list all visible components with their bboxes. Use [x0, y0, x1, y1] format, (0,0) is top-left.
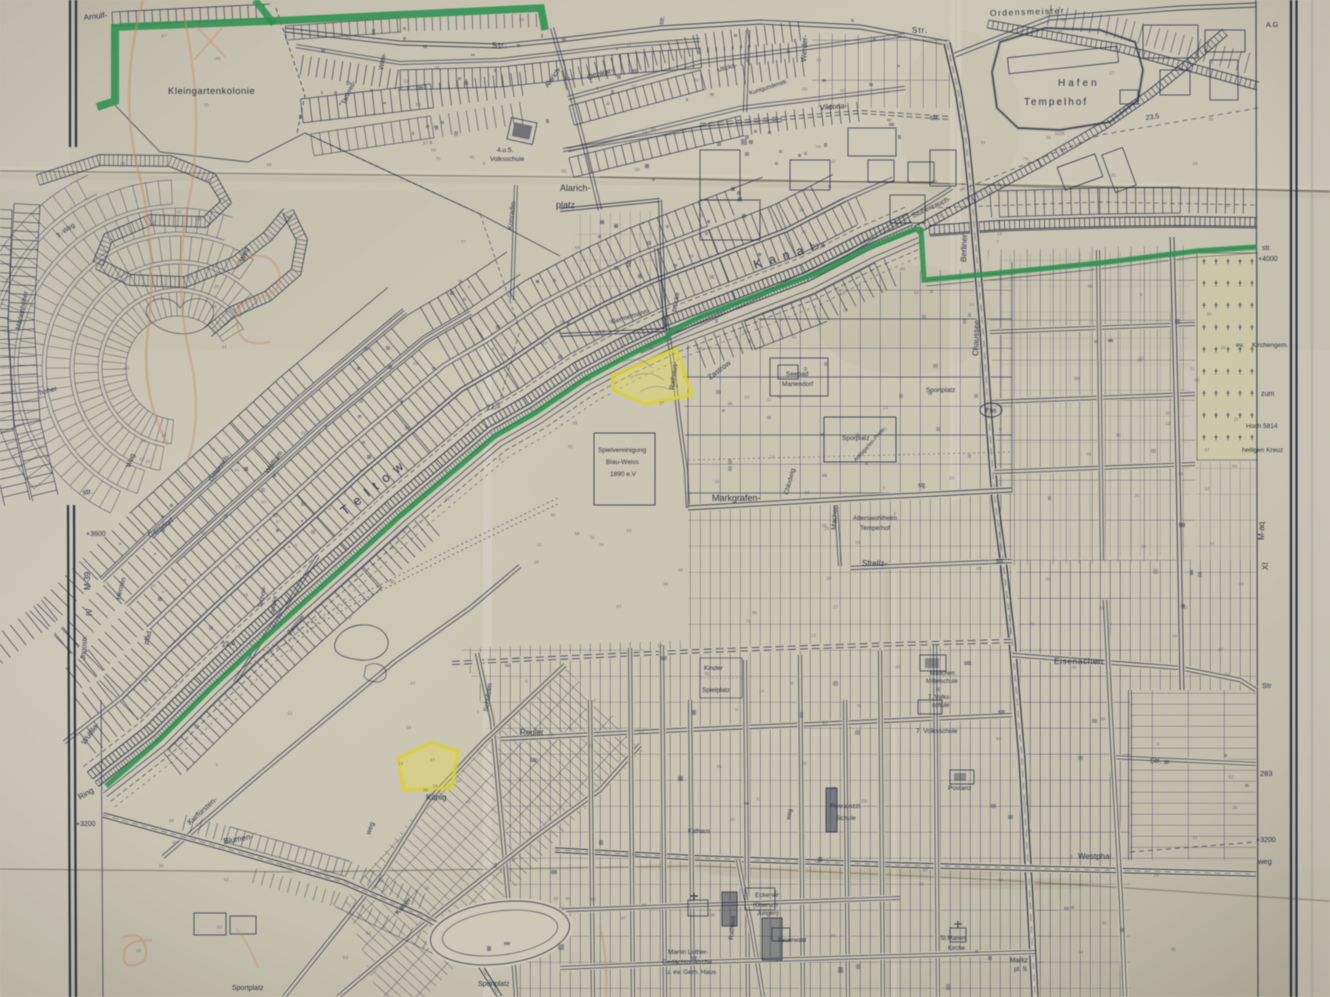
svg-text:11: 11: [626, 43, 631, 48]
svg-text:Reuler: Reuler: [520, 728, 544, 737]
svg-text:62: 62: [151, 583, 157, 588]
svg-text:64: 64: [996, 736, 1002, 741]
svg-text:Alterswohlheim: Alterswohlheim: [853, 515, 897, 522]
svg-text:79: 79: [1023, 156, 1029, 161]
svg-text:66: 66: [212, 304, 218, 309]
svg-text:47: 47: [410, 681, 416, 686]
svg-text:28: 28: [214, 284, 220, 289]
svg-text:Sportplatz: Sportplatz: [478, 981, 510, 988]
svg-text:10: 10: [826, 576, 832, 581]
svg-text:58: 58: [822, 523, 828, 528]
svg-text:60: 60: [1195, 378, 1201, 383]
svg-text:21: 21: [287, 711, 293, 716]
svg-text:52: 52: [404, 78, 410, 83]
svg-text:40: 40: [550, 513, 556, 518]
svg-text:18: 18: [1061, 148, 1067, 153]
svg-text:Tempelhof: Tempelhof: [1024, 97, 1088, 108]
svg-text:Str.: Str.: [1150, 756, 1161, 765]
svg-text:70: 70: [204, 103, 210, 108]
svg-text:75: 75: [478, 370, 484, 375]
svg-text:31: 31: [1046, 135, 1052, 140]
svg-text:62: 62: [280, 864, 286, 869]
svg-text:Spielplatz: Spielplatz: [702, 687, 730, 694]
svg-text:18: 18: [313, 471, 319, 476]
svg-text:30: 30: [1225, 203, 1231, 208]
svg-text:13: 13: [657, 643, 663, 648]
svg-text:66: 66: [501, 352, 507, 357]
svg-text:46: 46: [234, 467, 240, 472]
svg-text:14: 14: [398, 761, 404, 766]
svg-text:14: 14: [769, 454, 775, 459]
svg-text:23: 23: [195, 216, 201, 221]
svg-text:10: 10: [390, 545, 396, 550]
svg-text:73: 73: [210, 447, 216, 452]
svg-text:43: 43: [976, 566, 982, 571]
svg-text:12: 12: [1165, 421, 1171, 426]
svg-text:74: 74: [631, 852, 637, 857]
svg-text:37: 37: [1234, 417, 1240, 422]
svg-text:25: 25: [445, 496, 451, 501]
svg-text:26: 26: [425, 886, 431, 891]
svg-text:10: 10: [730, 817, 736, 822]
svg-text:65: 65: [651, 127, 657, 132]
svg-text:34: 34: [1078, 949, 1084, 954]
svg-text:34: 34: [1209, 541, 1215, 546]
svg-text:22: 22: [1099, 606, 1105, 611]
svg-text:16: 16: [559, 399, 565, 404]
svg-text:36: 36: [663, 582, 669, 587]
svg-text:53: 53: [855, 540, 861, 545]
svg-text:67: 67: [161, 34, 167, 39]
svg-text:heiligen Kreuz: heiligen Kreuz: [1242, 447, 1283, 454]
svg-text:XI: XI: [1261, 562, 1270, 570]
svg-text:Blau-Weiss: Blau-Weiss: [606, 459, 640, 466]
svg-text:51: 51: [519, 17, 525, 22]
svg-text:36: 36: [801, 230, 807, 235]
svg-text:13: 13: [831, 786, 837, 791]
svg-text:ev.: ev.: [1236, 342, 1244, 349]
svg-text:Feuerwald: Feuerwald: [778, 938, 806, 944]
svg-text:73: 73: [642, 130, 648, 135]
svg-text:14: 14: [759, 688, 765, 693]
svg-text:29: 29: [549, 732, 555, 737]
svg-text:73: 73: [1029, 622, 1035, 627]
svg-text:Mittelschule: Mittelschule: [926, 679, 958, 685]
svg-text:M-39: M-39: [83, 571, 92, 590]
svg-text:35: 35: [194, 723, 200, 728]
svg-text:+4000: +4000: [1258, 256, 1278, 263]
svg-text:42: 42: [176, 210, 182, 215]
svg-text:69: 69: [743, 329, 749, 334]
svg-text:Postanz: Postanz: [948, 785, 972, 792]
svg-text:37: 37: [831, 159, 837, 164]
svg-text:67: 67: [823, 720, 829, 725]
svg-text:66: 66: [566, 896, 572, 901]
svg-text:23: 23: [949, 475, 955, 480]
svg-text:67: 67: [151, 220, 157, 225]
svg-text:1890 e.V: 1890 e.V: [610, 471, 637, 478]
svg-text:Machon: Machon: [831, 505, 839, 530]
svg-text:35: 35: [1057, 30, 1063, 35]
svg-text:32: 32: [694, 78, 700, 83]
svg-text:68: 68: [575, 531, 581, 536]
svg-text:St.Marien: St.Marien: [940, 936, 966, 942]
svg-text:+3600: +3600: [86, 531, 106, 538]
svg-text:42: 42: [568, 444, 574, 449]
svg-text:32: 32: [1046, 577, 1052, 582]
svg-text:67: 67: [840, 88, 846, 93]
svg-text:str: str: [998, 709, 1006, 716]
svg-text:36: 36: [1208, 117, 1214, 122]
svg-text:39: 39: [1232, 805, 1238, 810]
svg-text:52: 52: [224, 877, 230, 882]
svg-text:67: 67: [632, 83, 638, 88]
svg-text:Kleingartenkolonie: Kleingartenkolonie: [168, 86, 255, 97]
svg-text:70: 70: [1126, 104, 1132, 109]
svg-text:27: 27: [1109, 71, 1115, 76]
svg-text:30: 30: [804, 490, 810, 495]
svg-text:Jungen): Jungen): [757, 911, 779, 917]
svg-text:(Obersch: (Obersch: [753, 903, 778, 909]
svg-text:7. Volksschule: 7. Volksschule: [916, 728, 958, 735]
svg-text:Chaussee: Chaussee: [971, 319, 981, 356]
svg-text:30: 30: [159, 863, 165, 868]
svg-text:68: 68: [413, 361, 419, 366]
svg-text:Volksschule: Volksschule: [490, 156, 525, 163]
svg-text:40: 40: [919, 882, 925, 887]
svg-text:Alarich-: Alarich-: [560, 183, 591, 193]
svg-text:68: 68: [301, 430, 307, 435]
svg-text:69: 69: [689, 254, 695, 259]
svg-text:39: 39: [1100, 716, 1106, 721]
svg-text:Martin Luther-: Martin Luther-: [668, 949, 708, 956]
svg-text:str.: str.: [1262, 245, 1271, 252]
svg-text:45: 45: [717, 764, 723, 769]
svg-text:19: 19: [534, 560, 540, 565]
svg-text:Schule: Schule: [836, 815, 856, 822]
svg-text:24: 24: [145, 459, 151, 464]
svg-text:platz: platz: [556, 200, 576, 210]
svg-text:IV: IV: [85, 608, 94, 616]
svg-text:67: 67: [591, 897, 597, 902]
svg-text:60: 60: [635, 167, 641, 172]
svg-text:19: 19: [932, 179, 938, 184]
svg-text:20: 20: [1220, 345, 1226, 350]
svg-text:64: 64: [627, 528, 633, 533]
svg-text:12: 12: [811, 633, 817, 638]
svg-text:46: 46: [469, 154, 475, 159]
svg-text:u.: u.: [936, 687, 941, 693]
svg-text:63: 63: [1228, 775, 1234, 780]
svg-text:12: 12: [1204, 486, 1210, 491]
svg-text:Markz: Markz: [1010, 957, 1028, 964]
svg-text:48: 48: [572, 420, 578, 425]
svg-text:22: 22: [1193, 835, 1199, 840]
svg-text:39: 39: [434, 66, 440, 71]
svg-text:30: 30: [773, 889, 779, 894]
svg-text:63: 63: [343, 955, 349, 960]
svg-text:Mariendorf: Mariendorf: [782, 381, 813, 388]
svg-text:283: 283: [1260, 769, 1273, 778]
svg-text:31: 31: [766, 397, 772, 402]
svg-text:22: 22: [998, 877, 1004, 882]
svg-text:str.: str.: [964, 660, 973, 667]
svg-text:67: 67: [140, 457, 146, 462]
svg-text:24: 24: [744, 395, 750, 400]
svg-text:64: 64: [1232, 463, 1238, 468]
svg-text:+3200: +3200: [76, 821, 96, 828]
svg-text:46: 46: [1061, 18, 1067, 23]
svg-text:weg: weg: [1257, 857, 1272, 866]
svg-text:M-aq: M-aq: [1257, 522, 1266, 540]
svg-text:37: 37: [1204, 447, 1210, 452]
svg-text:61: 61: [1139, 356, 1145, 361]
svg-text:32: 32: [1023, 802, 1029, 807]
svg-text:20: 20: [1165, 410, 1171, 415]
svg-text:Werder-: Werder-: [799, 34, 809, 62]
svg-text:15: 15: [120, 161, 126, 166]
svg-text:Spielvereinigung: Spielvereinigung: [598, 447, 646, 454]
svg-text:40: 40: [895, 665, 901, 670]
svg-text:36: 36: [1102, 920, 1108, 925]
svg-text:49: 49: [641, 903, 647, 908]
svg-text:49: 49: [215, 56, 221, 61]
svg-text:58: 58: [395, 445, 401, 450]
svg-text:22: 22: [997, 231, 1003, 236]
svg-text:16: 16: [243, 593, 249, 598]
svg-text:68: 68: [802, 86, 808, 91]
svg-text:47: 47: [1218, 647, 1224, 652]
svg-text:53: 53: [366, 930, 372, 935]
svg-text:26: 26: [433, 784, 439, 789]
svg-text:62: 62: [914, 290, 920, 295]
svg-text:Sfreliz-: Sfreliz-: [862, 559, 887, 568]
svg-text:26: 26: [465, 799, 471, 804]
svg-text:54: 54: [416, 102, 422, 107]
svg-text:65: 65: [561, 169, 567, 174]
svg-text:str.: str.: [930, 115, 939, 122]
svg-text:22: 22: [802, 761, 808, 766]
svg-text:Kirchengem.: Kirchengem.: [1252, 342, 1289, 349]
svg-text:str.: str.: [82, 486, 93, 497]
svg-text:49: 49: [831, 933, 837, 938]
svg-text:36: 36: [406, 725, 412, 730]
svg-text:str.: str.: [996, 558, 1005, 565]
svg-text:49: 49: [678, 567, 684, 572]
svg-text:34: 34: [980, 140, 986, 145]
svg-text:König: König: [426, 793, 446, 802]
svg-text:46: 46: [1086, 452, 1092, 457]
svg-text:64: 64: [575, 245, 581, 250]
svg-text:41: 41: [792, 335, 798, 340]
svg-text:21: 21: [883, 405, 889, 410]
svg-text:16: 16: [136, 948, 142, 953]
svg-text:Gedächtniskirche: Gedächtniskirche: [662, 959, 713, 966]
svg-text:76: 76: [589, 535, 595, 540]
svg-text:36: 36: [1171, 946, 1177, 951]
svg-text:A.G: A.G: [1266, 22, 1278, 29]
svg-text:50: 50: [609, 319, 615, 324]
svg-text:29: 29: [553, 896, 559, 901]
svg-text:Mädchen: Mädchen: [930, 671, 955, 677]
svg-text:Kathaus: Kathaus: [688, 829, 710, 835]
svg-text:26: 26: [141, 439, 147, 444]
svg-text:58: 58: [710, 912, 716, 917]
svg-text:69: 69: [862, 798, 868, 803]
svg-text:Sporplatz: Sporplatz: [842, 435, 869, 442]
svg-text:34: 34: [599, 542, 605, 547]
svg-text:38: 38: [799, 207, 805, 212]
svg-text:67: 67: [430, 757, 436, 762]
svg-text:13: 13: [639, 730, 645, 735]
svg-text:57: 57: [423, 140, 429, 145]
svg-text:30: 30: [1207, 311, 1213, 316]
svg-text:45: 45: [1116, 433, 1122, 438]
svg-text:51: 51: [602, 69, 608, 74]
svg-text:35: 35: [423, 788, 429, 793]
svg-text:47: 47: [923, 868, 929, 873]
svg-text:47: 47: [621, 916, 627, 921]
svg-text:pl. S: pl. S: [1014, 966, 1028, 973]
svg-text:60: 60: [627, 336, 633, 341]
svg-text:53: 53: [217, 924, 223, 929]
svg-text:34: 34: [456, 779, 462, 784]
svg-text:70: 70: [698, 213, 704, 218]
svg-text:55: 55: [346, 35, 352, 40]
svg-text:36: 36: [389, 579, 395, 584]
svg-text:str.: str.: [690, 955, 699, 962]
svg-text:36: 36: [1072, 665, 1078, 670]
svg-text:Tempelhof: Tempelhof: [860, 525, 890, 532]
svg-text:67: 67: [276, 519, 282, 524]
svg-text:u. ev. Gem. Haus: u. ev. Gem. Haus: [666, 969, 717, 976]
svg-text:68: 68: [169, 818, 175, 823]
svg-text:27: 27: [833, 605, 839, 610]
svg-text:Str: Str: [1262, 681, 1272, 690]
svg-text:11: 11: [537, 542, 542, 547]
svg-text:15: 15: [188, 274, 194, 279]
svg-text:25: 25: [1193, 161, 1199, 166]
svg-text:Str.: Str.: [492, 40, 509, 50]
svg-text:49: 49: [201, 530, 207, 535]
svg-text:43: 43: [882, 426, 888, 431]
svg-text:68: 68: [266, 162, 272, 167]
svg-text:Markgrafen-: Markgrafen-: [712, 493, 761, 503]
svg-text:76: 76: [188, 689, 194, 694]
svg-text:64: 64: [816, 144, 822, 149]
svg-text:66: 66: [752, 610, 758, 615]
svg-text:27: 27: [659, 400, 665, 405]
svg-text:33: 33: [1026, 828, 1032, 833]
svg-text:Hoch 5814: Hoch 5814: [1246, 423, 1278, 430]
svg-text:40: 40: [172, 840, 178, 845]
svg-text:Kirche: Kirche: [948, 946, 966, 952]
svg-text:24: 24: [1141, 544, 1147, 549]
svg-text:33: 33: [816, 57, 822, 62]
svg-text:Hafen: Hafen: [1058, 78, 1100, 89]
svg-text:27: 27: [235, 564, 241, 569]
svg-text:28: 28: [1060, 131, 1066, 136]
svg-text:30: 30: [261, 499, 267, 504]
svg-text:Str.: Str.: [912, 26, 928, 35]
svg-text:39: 39: [1095, 660, 1101, 665]
svg-text:31: 31: [1190, 366, 1196, 371]
svg-text:41: 41: [649, 346, 655, 351]
svg-text:Sportplatz: Sportplatz: [232, 985, 264, 992]
svg-text:16: 16: [714, 479, 720, 484]
svg-text:49: 49: [1239, 582, 1245, 587]
svg-text:22: 22: [588, 743, 594, 748]
svg-text:63: 63: [263, 424, 269, 429]
svg-text:71: 71: [746, 619, 752, 624]
svg-text:schule: schule: [932, 703, 950, 709]
svg-text:49: 49: [1172, 634, 1178, 639]
svg-text:67: 67: [616, 604, 622, 609]
svg-text:4.u.5.: 4.u.5.: [497, 147, 513, 154]
svg-text:Pesralozzi: Pesralozzi: [830, 803, 860, 810]
svg-text:Berliner: Berliner: [959, 234, 969, 262]
svg-text:56: 56: [1088, 283, 1094, 288]
svg-text:51: 51: [1225, 671, 1231, 676]
svg-text:66: 66: [556, 329, 562, 334]
svg-text:str.: str.: [530, 757, 539, 764]
svg-text:11: 11: [1178, 471, 1183, 476]
svg-text:64: 64: [673, 383, 679, 388]
svg-text:zum: zum: [1261, 391, 1274, 398]
svg-text:+3200: +3200: [1256, 837, 1276, 844]
svg-text:41: 41: [777, 394, 783, 399]
svg-text:45: 45: [124, 366, 130, 371]
svg-text:Seebad: Seebad: [786, 371, 809, 378]
svg-text:7. Volks-: 7. Volks-: [928, 695, 951, 701]
svg-text:14: 14: [222, 344, 228, 349]
svg-text:33: 33: [559, 319, 565, 324]
svg-text:77: 77: [461, 239, 467, 244]
svg-text:18: 18: [586, 377, 592, 382]
svg-text:71: 71: [436, 156, 442, 161]
svg-text:19: 19: [843, 308, 849, 313]
svg-text:49: 49: [900, 267, 906, 272]
svg-text:61: 61: [705, 671, 711, 676]
svg-text:31: 31: [1111, 172, 1117, 177]
svg-text:31: 31: [1135, 493, 1141, 498]
svg-text:58: 58: [431, 147, 437, 152]
svg-text:10: 10: [542, 341, 548, 346]
svg-text:79: 79: [856, 703, 862, 708]
svg-text:14: 14: [969, 302, 975, 307]
svg-text:70: 70: [559, 906, 565, 911]
svg-text:Westphal: Westphal: [1078, 852, 1111, 861]
svg-text:11: 11: [162, 432, 167, 437]
svg-text:61: 61: [937, 213, 943, 218]
svg-text:28: 28: [1154, 873, 1160, 878]
svg-text:str.: str.: [660, 655, 669, 662]
svg-text:65: 65: [379, 878, 385, 883]
